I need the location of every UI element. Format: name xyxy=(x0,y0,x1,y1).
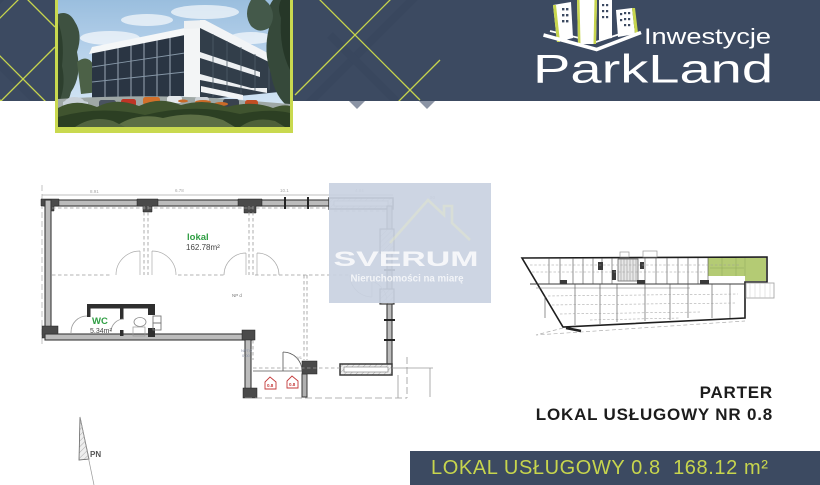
svg-text:0.8: 0.8 xyxy=(289,382,296,387)
svg-text:PN: PN xyxy=(90,450,101,459)
svg-text:162.78m²: 162.78m² xyxy=(186,243,220,252)
svg-text:5.34m²: 5.34m² xyxy=(90,328,112,335)
svg-text:NP d: NP d xyxy=(232,293,242,298)
svg-text:W1: W1 xyxy=(296,355,303,360)
svg-text:8.91: 8.91 xyxy=(90,189,99,194)
svg-text:10.1: 10.1 xyxy=(280,188,289,193)
svg-text:SVERUM: SVERUM xyxy=(334,248,479,271)
svg-text:0.8: 0.8 xyxy=(267,383,274,388)
svg-text:Nieruchomości na miarę: Nieruchomości na miarę xyxy=(351,274,464,285)
svg-text:6.78: 6.78 xyxy=(175,188,184,193)
svg-text:lokal: lokal xyxy=(187,232,209,243)
svg-text:WC: WC xyxy=(92,316,108,327)
svg-text:0.00: 0.00 xyxy=(242,353,251,358)
